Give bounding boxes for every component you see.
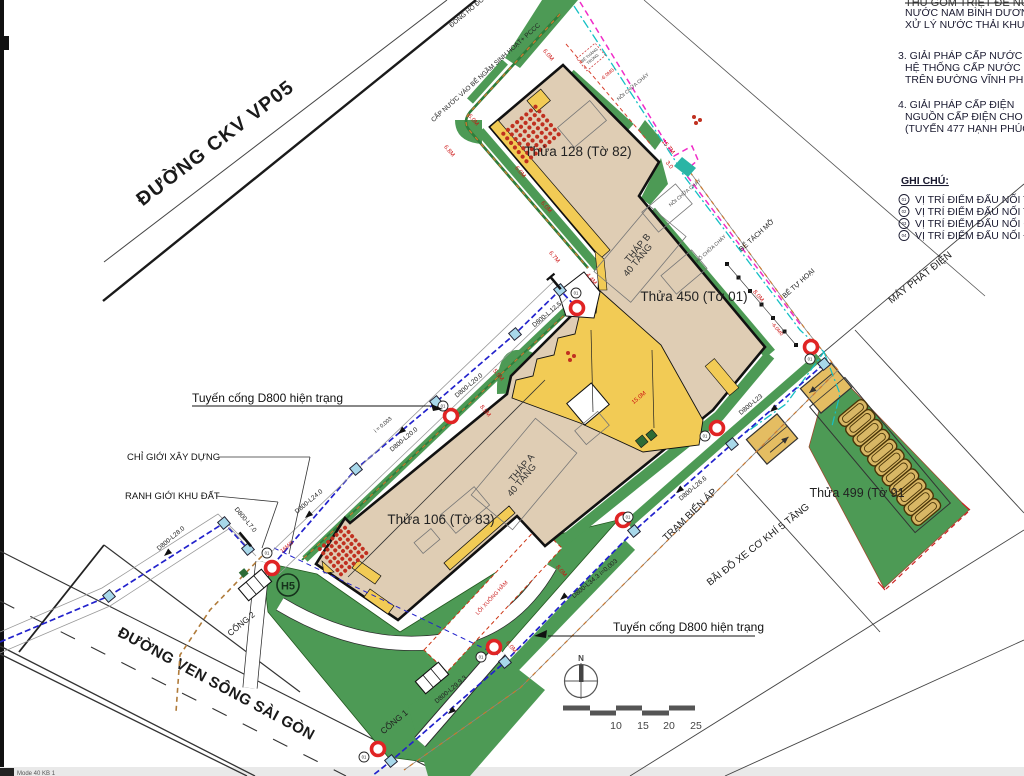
svg-text:Tuyến cống D800 hiện trạng: Tuyến cống D800 hiện trạng [613,620,764,634]
svg-text:20: 20 [663,720,675,732]
svg-text:TRÊN ĐƯỜNG VĨNH PHÚ 22: TRÊN ĐƯỜNG VĨNH PHÚ 22 [905,73,1024,86]
svg-text:VỊ TRÍ ĐIỂM ĐẤU NỐI THOÁT: VỊ TRÍ ĐIỂM ĐẤU NỐI THOÁT [915,204,1024,218]
svg-text:XỬ LÝ NƯỚC THẢI KHU VỰC: XỬ LÝ NƯỚC THẢI KHU VỰC [905,18,1024,31]
svg-text:01: 01 [479,655,484,660]
svg-text:01: 01 [362,755,367,760]
svg-text:01: 01 [574,291,579,296]
svg-text:Thửa 450 (Tờ 01): Thửa 450 (Tờ 01) [640,289,747,304]
svg-text:3. GIẢI PHÁP CẤP NƯỚC: 3. GIẢI PHÁP CẤP NƯỚC [898,49,1023,62]
svg-text:CHỈ GIỚI XÂY DỰNG: CHỈ GIỚI XÂY DỰNG [127,451,220,463]
svg-text:01: 01 [441,404,446,409]
svg-text:N: N [578,654,584,663]
svg-text:01: 01 [902,197,907,202]
svg-text:Tuyến cống D800 hiện trạng: Tuyến cống D800 hiện trạng [192,391,343,405]
svg-text:01: 01 [626,515,631,520]
svg-text:NGUỒN CẤP ĐIỆN CHO DỰ Á: NGUỒN CẤP ĐIỆN CHO DỰ Á [905,110,1024,123]
svg-text:01: 01 [265,551,270,556]
svg-text:Mode 40 KB 1: Mode 40 KB 1 [17,771,56,776]
svg-text:01: 01 [808,357,813,362]
svg-text:(TUYẾN 477 HẠNH PHÚC TH: (TUYẾN 477 HẠNH PHÚC TH [905,122,1024,135]
svg-text:NƯỚC NAM BÌNH DƯƠNG C: NƯỚC NAM BÌNH DƯƠNG C [905,6,1024,19]
svg-text:GHI CHÚ:: GHI CHÚ: [901,174,949,187]
svg-text:15: 15 [637,720,649,732]
svg-text:02: 02 [902,209,907,214]
svg-text:01: 01 [703,434,708,439]
svg-text:4. GIẢI PHÁP CẤP ĐIỆN: 4. GIẢI PHÁP CẤP ĐIỆN [898,98,1014,111]
svg-text:10: 10 [610,720,622,732]
svg-text:HỆ THỐNG CẤP NƯỚC CỦA: HỆ THỐNG CẤP NƯỚC CỦA [905,60,1024,74]
svg-text:04: 04 [902,233,907,238]
svg-text:03: 03 [902,221,907,226]
svg-text:VỊ TRÍ ĐIỂM ĐẤU NỐI ĐIỆN: VỊ TRÍ ĐIỂM ĐẤU NỐI ĐIỆN [915,228,1024,242]
svg-text:H5: H5 [281,581,295,593]
svg-text:Thửa 499 (Tờ 91: Thửa 499 (Tờ 91 [809,486,904,500]
svg-text:25: 25 [690,720,702,732]
svg-text:RANH GIỚI KHU ĐẤT: RANH GIỚI KHU ĐẤT [125,491,220,502]
svg-text:VỊ TRÍ ĐIỂM ĐẤU NỐI CẤP N: VỊ TRÍ ĐIỂM ĐẤU NỐI CẤP N [915,216,1024,230]
svg-text:Thửa 128 (Tờ 82): Thửa 128 (Tờ 82) [524,144,631,159]
svg-text:VỊ TRÍ ĐIỂM ĐẤU NỐI THOÁT: VỊ TRÍ ĐIỂM ĐẤU NỐI THOÁT [915,192,1024,206]
svg-text:Thửa 106 (Tờ 83): Thửa 106 (Tờ 83) [387,512,494,527]
